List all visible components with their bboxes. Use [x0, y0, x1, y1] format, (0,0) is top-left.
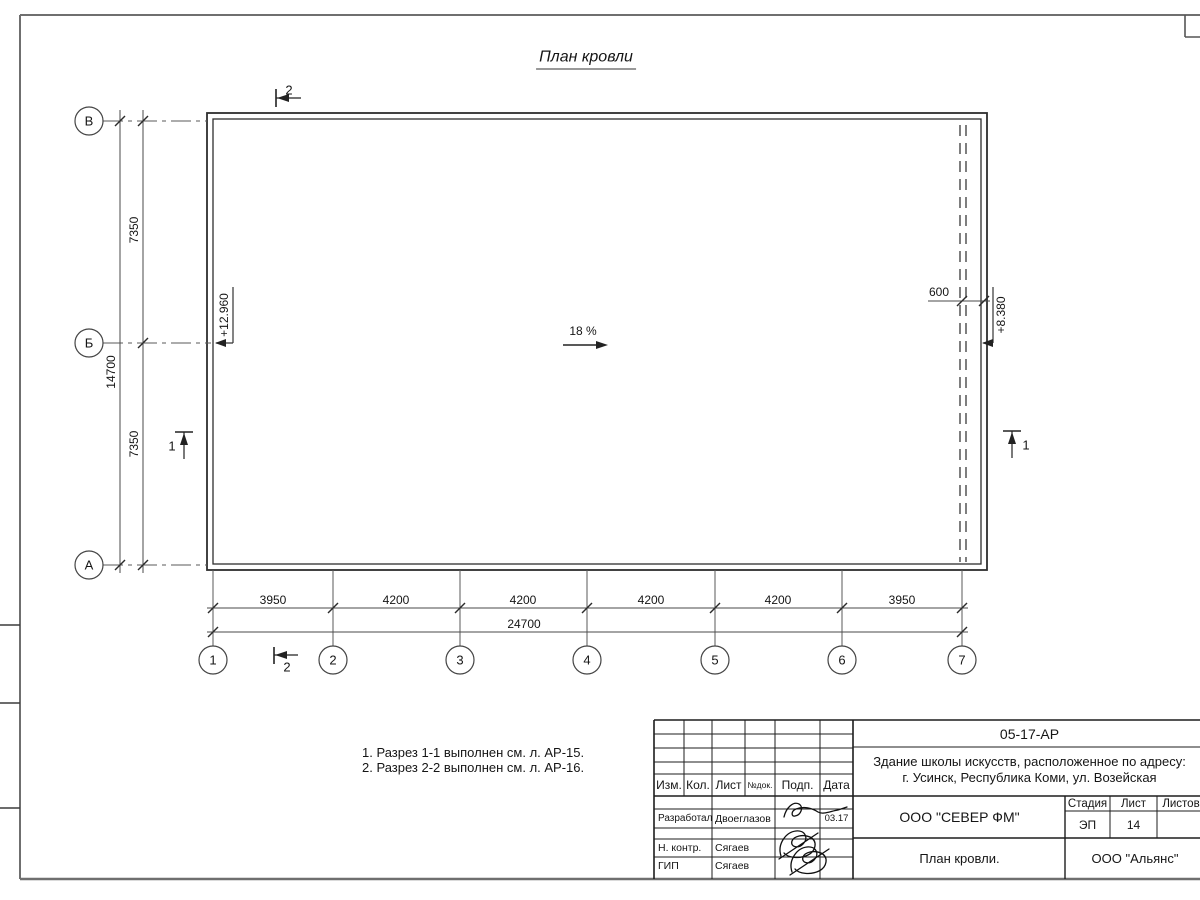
dim-bottom-total: 24700: [507, 617, 540, 631]
dim-left-total: 14700: [104, 355, 118, 388]
dim-bottom-5: 4200: [765, 593, 792, 607]
titleblock-stage-value: ЭП: [1065, 811, 1110, 838]
titleblock-date-developer: 03.17: [820, 809, 853, 828]
titleblock-company: ООО "СЕВЕР ФМ": [854, 796, 1065, 838]
drawing-title: План кровли: [536, 49, 636, 70]
section-label-2-top: 2: [285, 83, 292, 98]
grid-axis-lines: [103, 121, 962, 646]
titleblock-name-developer: Двоеглазов: [715, 809, 773, 828]
titleblock-name-gip: Сягаев: [715, 857, 773, 875]
titleblock-sheet-header: Лист: [1110, 796, 1157, 811]
titleblock-col-podp: Подп.: [775, 774, 820, 796]
signature-gip: [790, 847, 829, 875]
dim-parapet-offset: 600: [929, 285, 949, 299]
titleblock-doc-number: 05-17-АР: [854, 720, 1200, 747]
dim-bottom-2: 4200: [383, 593, 410, 607]
titleblock-role-ncontrol: Н. контр.: [658, 839, 712, 857]
titleblock-name-ncontrol: Сягаев: [715, 839, 773, 857]
dim-left-lower: 7350: [127, 431, 141, 458]
titleblock-col-ndok: №док.: [745, 774, 775, 796]
section-label-1-right: 1: [1022, 438, 1029, 453]
slope-label: 18 %: [569, 324, 596, 338]
titleblock-project-line2: г. Усинск, Республика Коми, ул. Возейска…: [854, 768, 1200, 786]
axis-label-row-b: Б: [85, 336, 94, 351]
titleblock-role-gip: ГИП: [658, 857, 712, 875]
dimension-ticks: [115, 116, 989, 637]
axis-label-col-1: 1: [209, 653, 216, 668]
elevation-mark-left: +12.960: [217, 293, 231, 337]
section-label-2-bottom: 2: [283, 660, 290, 675]
dim-bottom-1: 3950: [260, 593, 287, 607]
slope-arrow: [563, 341, 608, 349]
axis-label-col-7: 7: [958, 653, 965, 668]
titleblock-role-developer: Разработал: [658, 809, 712, 828]
titleblock-stage-header: Стадия: [1065, 796, 1110, 811]
axis-label-row-a: А: [85, 558, 94, 573]
axis-label-col-6: 6: [838, 653, 845, 668]
titleblock-col-list: Лист: [712, 774, 745, 796]
grid-axis-bubbles: [75, 107, 976, 674]
sheet-frame: [0, 15, 1200, 879]
dim-bottom-4: 4200: [638, 593, 665, 607]
hidden-wall-dashed-line: [960, 125, 966, 562]
dim-bottom-6: 3950: [889, 593, 916, 607]
section-label-1-left: 1: [168, 439, 175, 454]
titleblock-sheets-header: Листов: [1157, 796, 1200, 811]
drawing-sheet: План кровли 1. Разрез 1-1 выполнен см. л…: [0, 0, 1200, 900]
note-line-2: 2. Разрез 2-2 выполнен см. л. АР-16.: [362, 760, 584, 775]
section-marks: [175, 89, 1021, 664]
axis-label-col-4: 4: [583, 653, 590, 668]
dim-left-upper: 7350: [127, 217, 141, 244]
titleblock-sheet-value: 14: [1110, 811, 1157, 838]
titleblock-col-kol: Кол.: [684, 774, 712, 796]
titleblock-contractor: ООО "Альянс": [1065, 838, 1200, 879]
elevation-mark-right: +8.380: [994, 296, 1008, 333]
titleblock-col-izm: Изм.: [654, 774, 684, 796]
axis-label-row-v: В: [85, 114, 94, 129]
titleblock-col-data: Дата: [820, 774, 853, 796]
dim-bottom-3: 4200: [510, 593, 537, 607]
axis-label-col-3: 3: [456, 653, 463, 668]
axis-label-col-2: 2: [329, 653, 336, 668]
note-line-1: 1. Разрез 1-1 выполнен см. л. АР-15.: [362, 745, 584, 760]
axis-label-col-5: 5: [711, 653, 718, 668]
elevation-leaders: [215, 287, 993, 347]
titleblock-drawing-name: План кровли.: [854, 838, 1065, 879]
dimension-lines: [120, 110, 990, 632]
signature-ncontrol: [779, 831, 818, 859]
